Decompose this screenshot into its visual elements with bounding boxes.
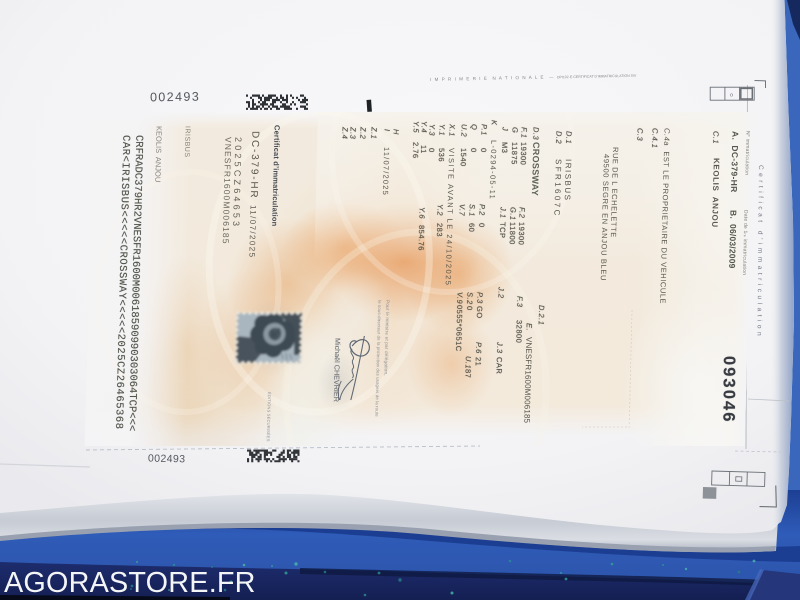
svg-text:o: o (730, 93, 733, 99)
